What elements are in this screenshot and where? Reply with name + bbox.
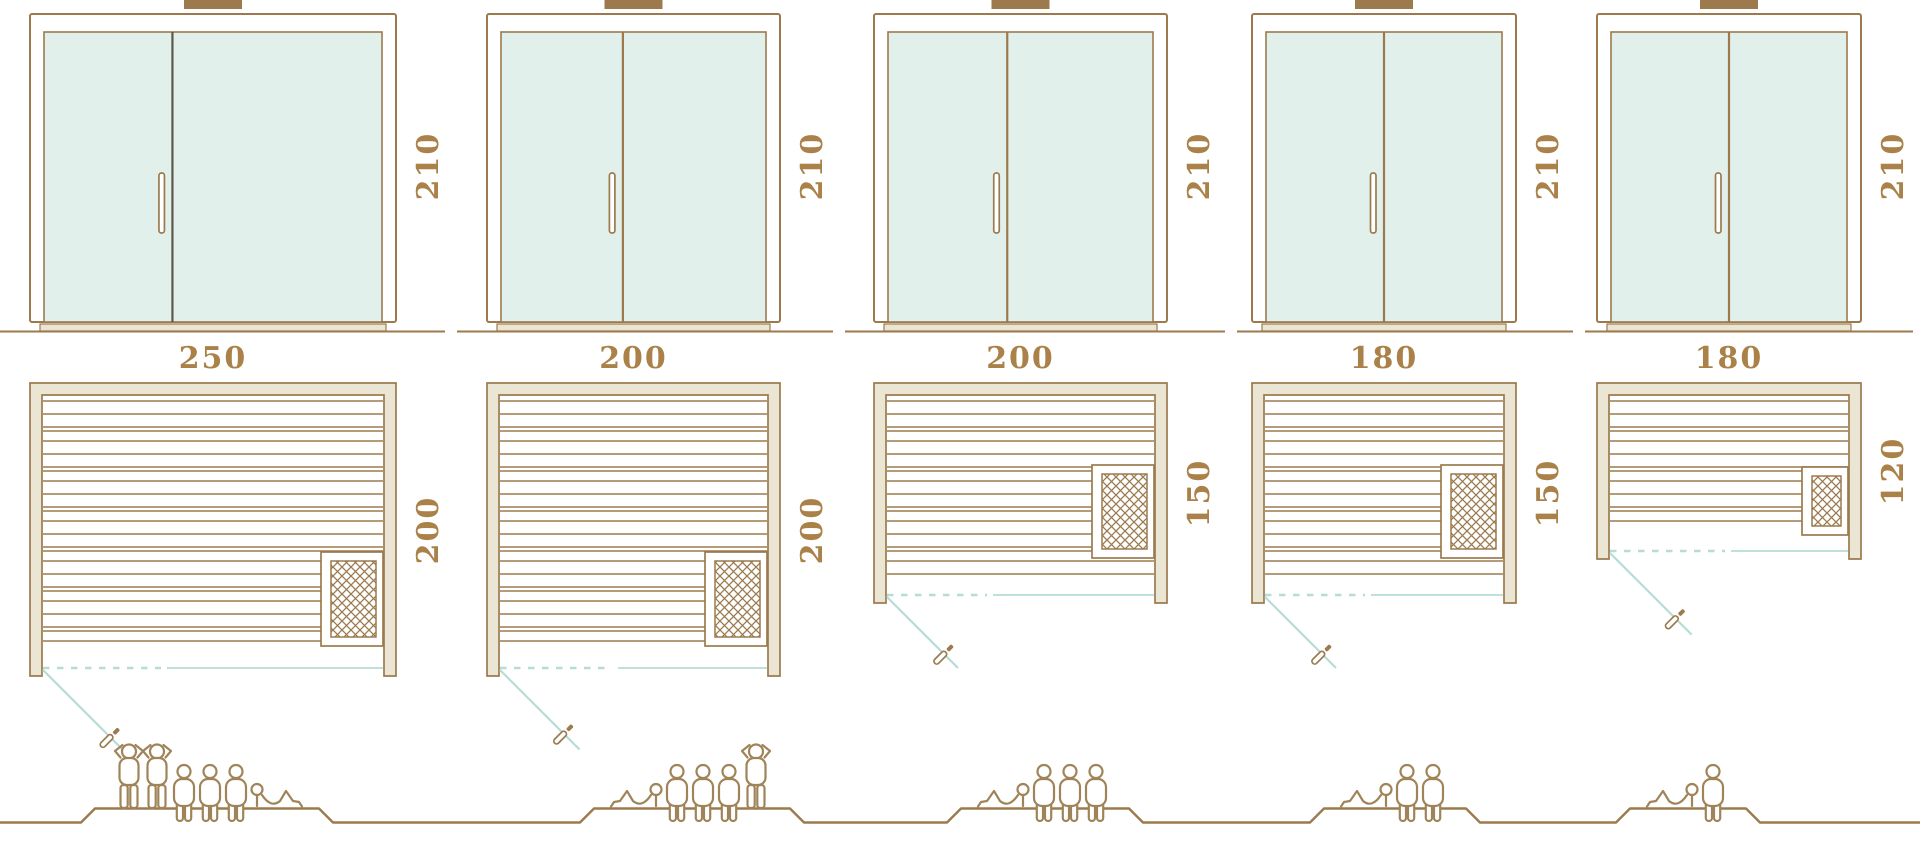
figure-seated-icon [200, 765, 220, 821]
chimney-cap [605, 0, 663, 9]
door-height-dimension-label: 210 [1532, 121, 1566, 211]
chimney-cap [184, 0, 242, 9]
door-handle-icon [609, 173, 615, 233]
door-threshold [1607, 324, 1851, 331]
door-swing-line [43, 670, 127, 754]
door-swing-line [1265, 597, 1336, 668]
figure-lying-icon [611, 784, 662, 807]
figure-lying-icon [1647, 784, 1698, 807]
heater-icon [1802, 467, 1848, 535]
door-swing-line [1610, 553, 1692, 635]
width-dimension-label: 200 [874, 341, 1167, 376]
door-glass [44, 32, 382, 322]
capacity-figures [1647, 765, 1723, 821]
heater-icon [1441, 465, 1503, 558]
chimney-cap [1355, 0, 1413, 9]
figure-seated-icon [226, 765, 246, 821]
heater-icon [321, 552, 383, 646]
door-elevation [1597, 0, 1861, 331]
door-swing-line [887, 597, 958, 668]
depth-dimension-label: 200 [796, 485, 830, 575]
door-glass [501, 32, 766, 322]
floor-plan [487, 383, 780, 750]
chimney-cap [992, 0, 1050, 9]
width-dimension-label: 180 [1252, 341, 1516, 376]
door-height-dimension-label: 210 [1877, 121, 1911, 211]
door-handle-icon [994, 173, 1000, 233]
door-elevation [487, 0, 780, 331]
figure-seated-icon [1703, 765, 1723, 821]
figure-seated-icon [1060, 765, 1080, 821]
door-handle-icon [1716, 173, 1722, 233]
floor-plan [1252, 383, 1516, 668]
heater-icon [705, 552, 767, 646]
figure-seated-icon [1397, 765, 1417, 821]
figure-standing-icon [143, 745, 171, 809]
figure-seated-icon [1086, 765, 1106, 821]
width-dimension-label: 200 [487, 341, 780, 376]
figure-seated-icon [1423, 765, 1443, 821]
capacity-figures [1341, 765, 1443, 821]
figure-seated-icon [693, 765, 713, 821]
diagram-canvas [0, 0, 1920, 856]
figure-lying-icon [252, 784, 303, 807]
door-height-dimension-label: 210 [412, 121, 446, 211]
floor-plan [874, 383, 1167, 668]
door-threshold [884, 324, 1157, 331]
people-baseline [0, 809, 1920, 823]
door-elevation [1252, 0, 1516, 331]
door-threshold [497, 324, 770, 331]
door-handle-icon [1371, 173, 1377, 233]
width-dimension-label: 180 [1597, 341, 1861, 376]
sauna-size-comparison-diagram: 250 210 200 200 210 200 200 210 150 180 … [0, 0, 1920, 856]
chimney-cap [1700, 0, 1758, 9]
figure-seated-icon [174, 765, 194, 821]
depth-dimension-label: 150 [1183, 448, 1217, 538]
figure-seated-icon [719, 765, 739, 821]
depth-dimension-label: 150 [1532, 448, 1566, 538]
door-elevation [30, 0, 396, 331]
door-height-dimension-label: 210 [1183, 121, 1217, 211]
door-swing-line [500, 670, 580, 750]
door-glass [888, 32, 1153, 322]
door-threshold [1262, 324, 1506, 331]
figure-lying-icon [978, 784, 1029, 807]
door-elevation [874, 0, 1167, 331]
width-dimension-label: 250 [30, 341, 396, 376]
heater-icon [1092, 465, 1154, 558]
door-height-dimension-label: 210 [796, 121, 830, 211]
figure-standing-icon [115, 745, 143, 809]
depth-dimension-label: 120 [1877, 426, 1911, 516]
figure-seated-icon [667, 765, 687, 821]
floor-plan [30, 383, 396, 754]
floor-plan [1597, 383, 1861, 635]
door-threshold [40, 324, 386, 331]
door-handle-icon [159, 173, 165, 233]
figure-seated-icon [1034, 765, 1054, 821]
figure-lying-icon [1341, 784, 1392, 807]
capacity-figures [978, 765, 1106, 821]
figure-standing-icon [742, 745, 770, 809]
depth-dimension-label: 200 [412, 485, 446, 575]
